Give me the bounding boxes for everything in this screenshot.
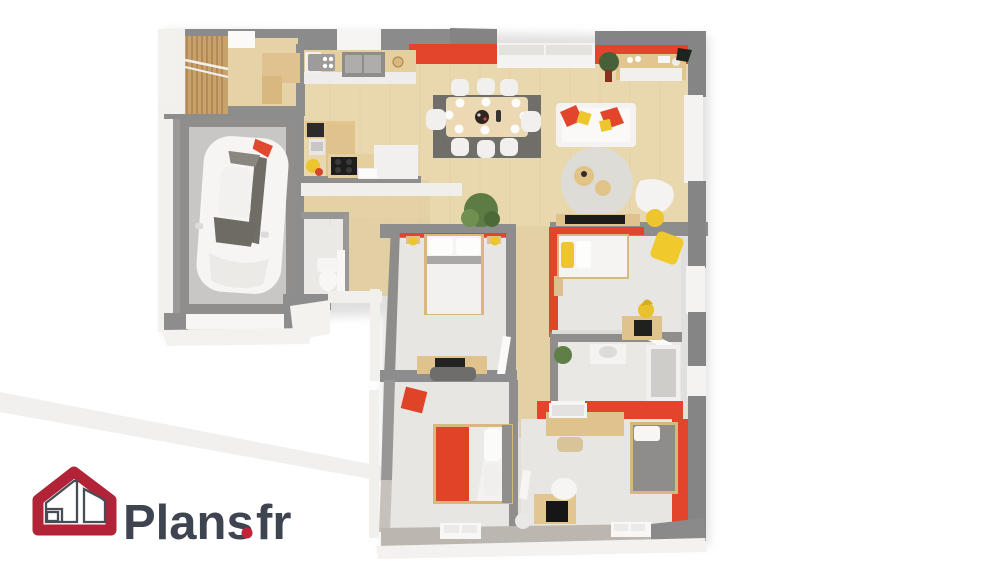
svg-text:Plans: Plans [123, 496, 254, 550]
svg-text:fr: fr [256, 496, 291, 550]
